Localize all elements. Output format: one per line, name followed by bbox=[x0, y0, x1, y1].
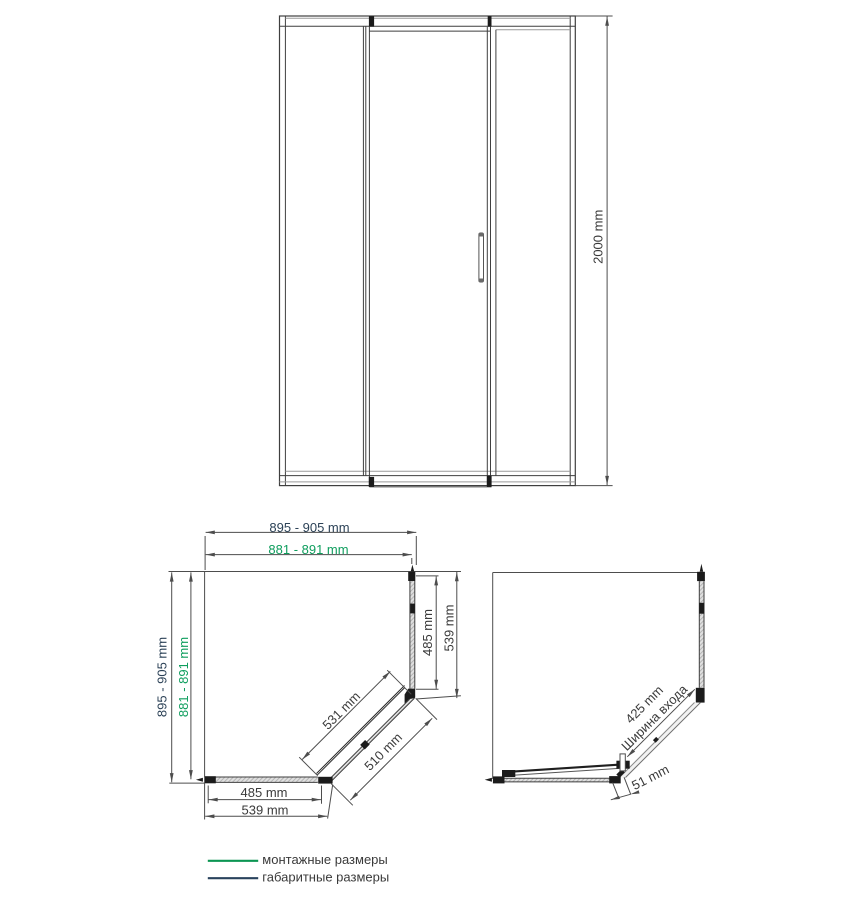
svg-text:881 - 891 mm: 881 - 891 mm bbox=[268, 542, 348, 557]
svg-text:539 mm: 539 mm bbox=[442, 605, 457, 652]
svg-text:895 - 905 mm: 895 - 905 mm bbox=[269, 520, 349, 535]
svg-text:2000 mm: 2000 mm bbox=[591, 210, 606, 264]
svg-text:539 mm: 539 mm bbox=[242, 802, 289, 817]
svg-text:881 - 891 mm: 881 - 891 mm bbox=[176, 637, 191, 717]
svg-text:габаритные размеры: габаритные размеры bbox=[262, 869, 389, 884]
svg-text:531 mm: 531 mm bbox=[319, 689, 363, 733]
svg-text:485 mm: 485 mm bbox=[420, 609, 435, 656]
svg-text:монтажные размеры: монтажные размеры bbox=[262, 852, 387, 867]
svg-text:895 - 905 mm: 895 - 905 mm bbox=[155, 637, 170, 717]
svg-text:485 mm: 485 mm bbox=[241, 785, 288, 800]
